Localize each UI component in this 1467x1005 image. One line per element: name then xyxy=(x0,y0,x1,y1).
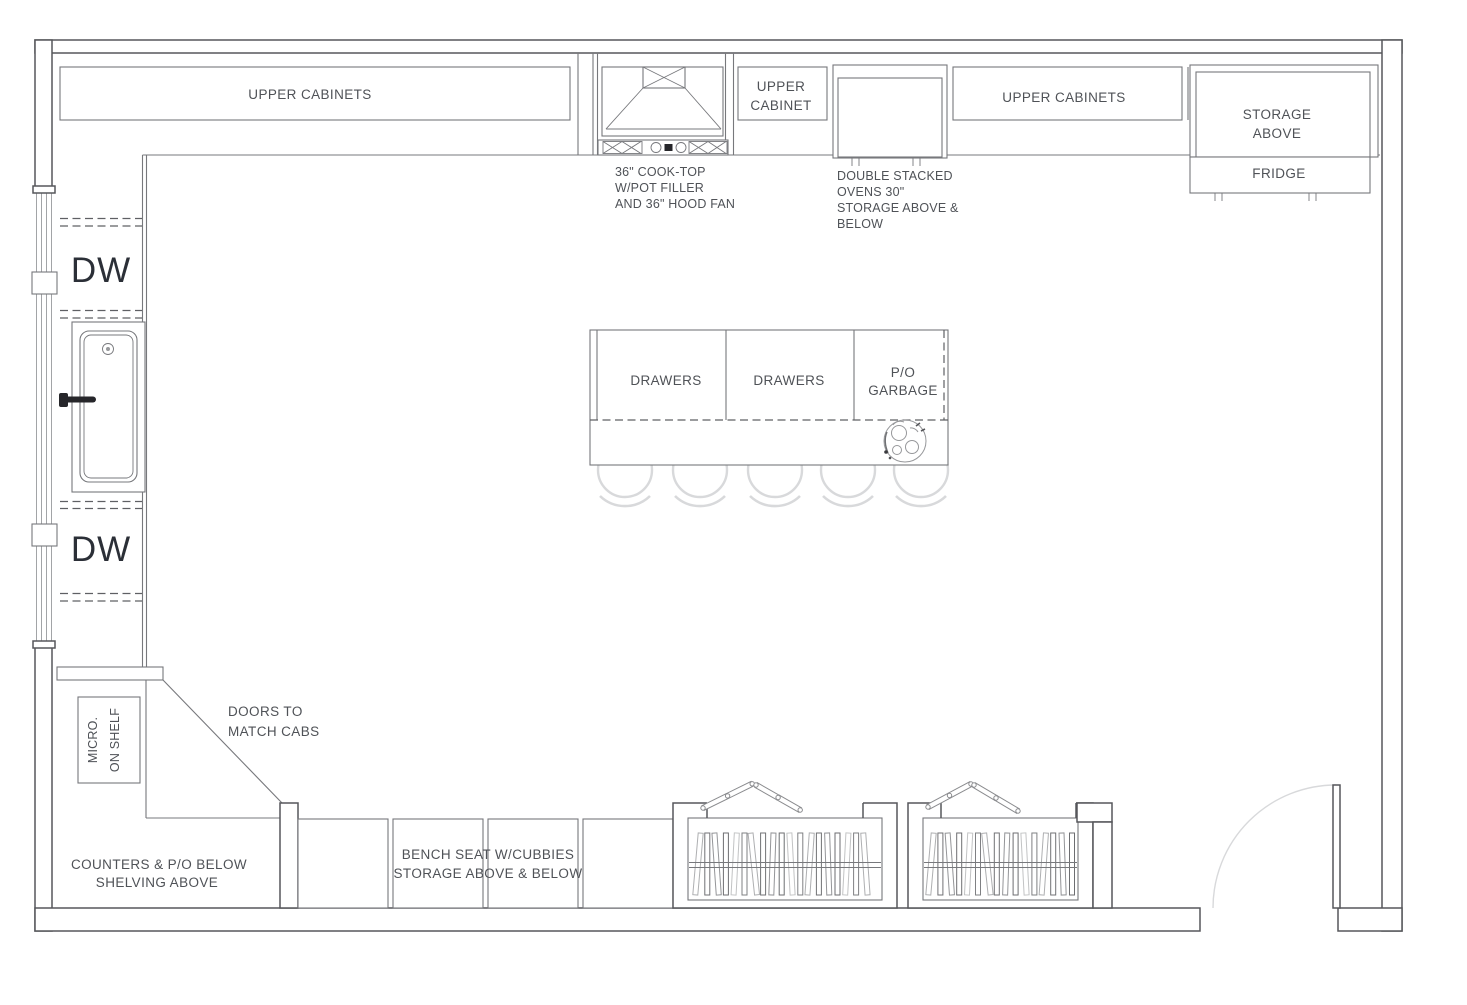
ovens-note-3: STORAGE ABOVE & xyxy=(837,201,959,215)
clothes-slat xyxy=(798,833,803,895)
bench-note-1: BENCH SEAT W/CUBBIES xyxy=(402,847,575,862)
microwave-label-1: MICRO. xyxy=(86,717,100,763)
cooktop-hood: 36" COOK-TOP W/POT FILLER AND 36" HOOD F… xyxy=(578,53,735,211)
upper-cabinets-left-label: UPPER CABINETS xyxy=(248,87,371,102)
dishwasher-sink-column: DW DW xyxy=(59,155,147,667)
storage-above-label-1: STORAGE xyxy=(1243,107,1312,122)
bench-cubby xyxy=(393,819,483,908)
upper-cabinet-small-label-1: UPPER xyxy=(757,79,806,94)
sink-basin-inner xyxy=(84,335,133,478)
clothes-slat xyxy=(994,833,999,895)
fridge-handle-icon xyxy=(1309,193,1316,201)
corner-cabinet-diagonal xyxy=(163,680,282,803)
cooktop-grate-right xyxy=(689,142,727,154)
island-drawers-right-label: DRAWERS xyxy=(753,373,824,388)
ovens-note-2: OVENS 30" xyxy=(837,185,904,199)
wall-left-lower xyxy=(35,647,52,931)
ovens-note-1: DOUBLE STACKED xyxy=(837,169,953,183)
wall-pillar-right-top xyxy=(1077,803,1112,822)
cooktop-note-3: AND 36" HOOD FAN xyxy=(615,197,735,211)
wall-pillar-right-stem xyxy=(1093,822,1112,908)
clothes-slat xyxy=(1032,833,1037,895)
clothes-slat xyxy=(1070,833,1075,895)
cooktop-grate-left xyxy=(603,142,642,154)
ovens-note-4: BELOW xyxy=(837,217,883,231)
entry-door xyxy=(1213,785,1340,908)
window-left xyxy=(32,186,57,648)
bench-cubby xyxy=(488,819,578,908)
clothes-slat xyxy=(957,833,962,895)
storage-above-label-2: ABOVE xyxy=(1253,126,1302,141)
microwave-label-2: ON SHELF xyxy=(108,708,122,772)
wall-bottom xyxy=(35,908,1200,931)
wall-pillar-left xyxy=(280,803,298,908)
closet-right xyxy=(908,782,1112,908)
upper-cabinet-small-label-2: CABINET xyxy=(750,98,811,113)
cooktop-control-icon xyxy=(665,144,673,151)
cooktop-note-2: W/POT FILLER xyxy=(615,181,704,195)
counters-note-1: COUNTERS & P/O BELOW xyxy=(71,857,247,872)
fridge-label: FRIDGE xyxy=(1252,166,1305,181)
fridge-handle-icon xyxy=(1215,193,1222,201)
clothes-slat xyxy=(705,833,710,895)
island-drawers-left-label: DRAWERS xyxy=(630,373,701,388)
clothes-slat xyxy=(835,833,840,895)
counter-end-panel xyxy=(57,667,163,680)
bench-cubby xyxy=(298,819,388,908)
door-leaf xyxy=(1333,785,1340,908)
clothes-slat xyxy=(761,833,766,895)
oven-handle-icon xyxy=(913,158,920,166)
ovens-inner-box xyxy=(838,78,942,157)
corner-pantry: MICRO. ON SHELF DOORS TO MATCH CABS COUN… xyxy=(57,667,320,908)
wall-ovens: DOUBLE STACKED OVENS 30" STORAGE ABOVE &… xyxy=(833,65,959,231)
counters-note-2: SHELVING ABOVE xyxy=(96,875,218,890)
garbage-label-2: GARBAGE xyxy=(868,383,938,398)
faucet-icon xyxy=(64,397,96,403)
fridge-area: STORAGE ABOVE FRIDGE xyxy=(1190,65,1378,201)
clothes-slat xyxy=(816,833,821,895)
clothes-slat xyxy=(1013,833,1018,895)
sink-drain-dot xyxy=(106,347,110,351)
window-sill-top xyxy=(33,186,55,193)
window-mullion-upper xyxy=(32,272,57,294)
oven-handle-icon xyxy=(852,158,859,166)
clothes-slat xyxy=(854,833,859,895)
kitchen-sink xyxy=(59,322,145,492)
clothes-slat xyxy=(938,833,943,895)
clothes-slat xyxy=(723,833,728,895)
clothes-slat xyxy=(742,833,747,895)
window-sill-bottom xyxy=(33,641,55,648)
bench-seat: BENCH SEAT W/CUBBIES STORAGE ABOVE & BEL… xyxy=(298,819,673,908)
corner-doors-note-1: DOORS TO xyxy=(228,704,303,719)
clothes-slat xyxy=(779,833,784,895)
corner-doors-note-2: MATCH CABS xyxy=(228,724,320,739)
upper-cabinets-right-label: UPPER CABINETS xyxy=(1002,90,1125,105)
wall-bottom-right xyxy=(1338,908,1402,931)
bench-note-2: STORAGE ABOVE & BELOW xyxy=(394,866,583,881)
window-mullion-lower xyxy=(32,524,57,546)
wall-top xyxy=(35,40,1402,53)
wall-right xyxy=(1382,40,1402,931)
kitchen-floor-plan: UPPER CABINETS UPPER CABINET UPPER CABIN… xyxy=(0,0,1467,1005)
dishwasher-top-label: DW xyxy=(71,251,131,290)
cooktop-note-1: 36" COOK-TOP xyxy=(615,165,706,179)
door-swing-arc xyxy=(1213,785,1336,908)
clothes-slat xyxy=(1051,833,1056,895)
clothes-slat xyxy=(976,833,981,895)
island-area: DRAWERS DRAWERS P/O GARBAGE xyxy=(590,330,948,506)
dishwasher-bottom-label: DW xyxy=(71,530,131,569)
garbage-label-1: P/O xyxy=(891,365,915,380)
bench-cubby xyxy=(583,819,673,908)
closet-left xyxy=(673,781,897,908)
wall-left-upper xyxy=(35,40,52,190)
